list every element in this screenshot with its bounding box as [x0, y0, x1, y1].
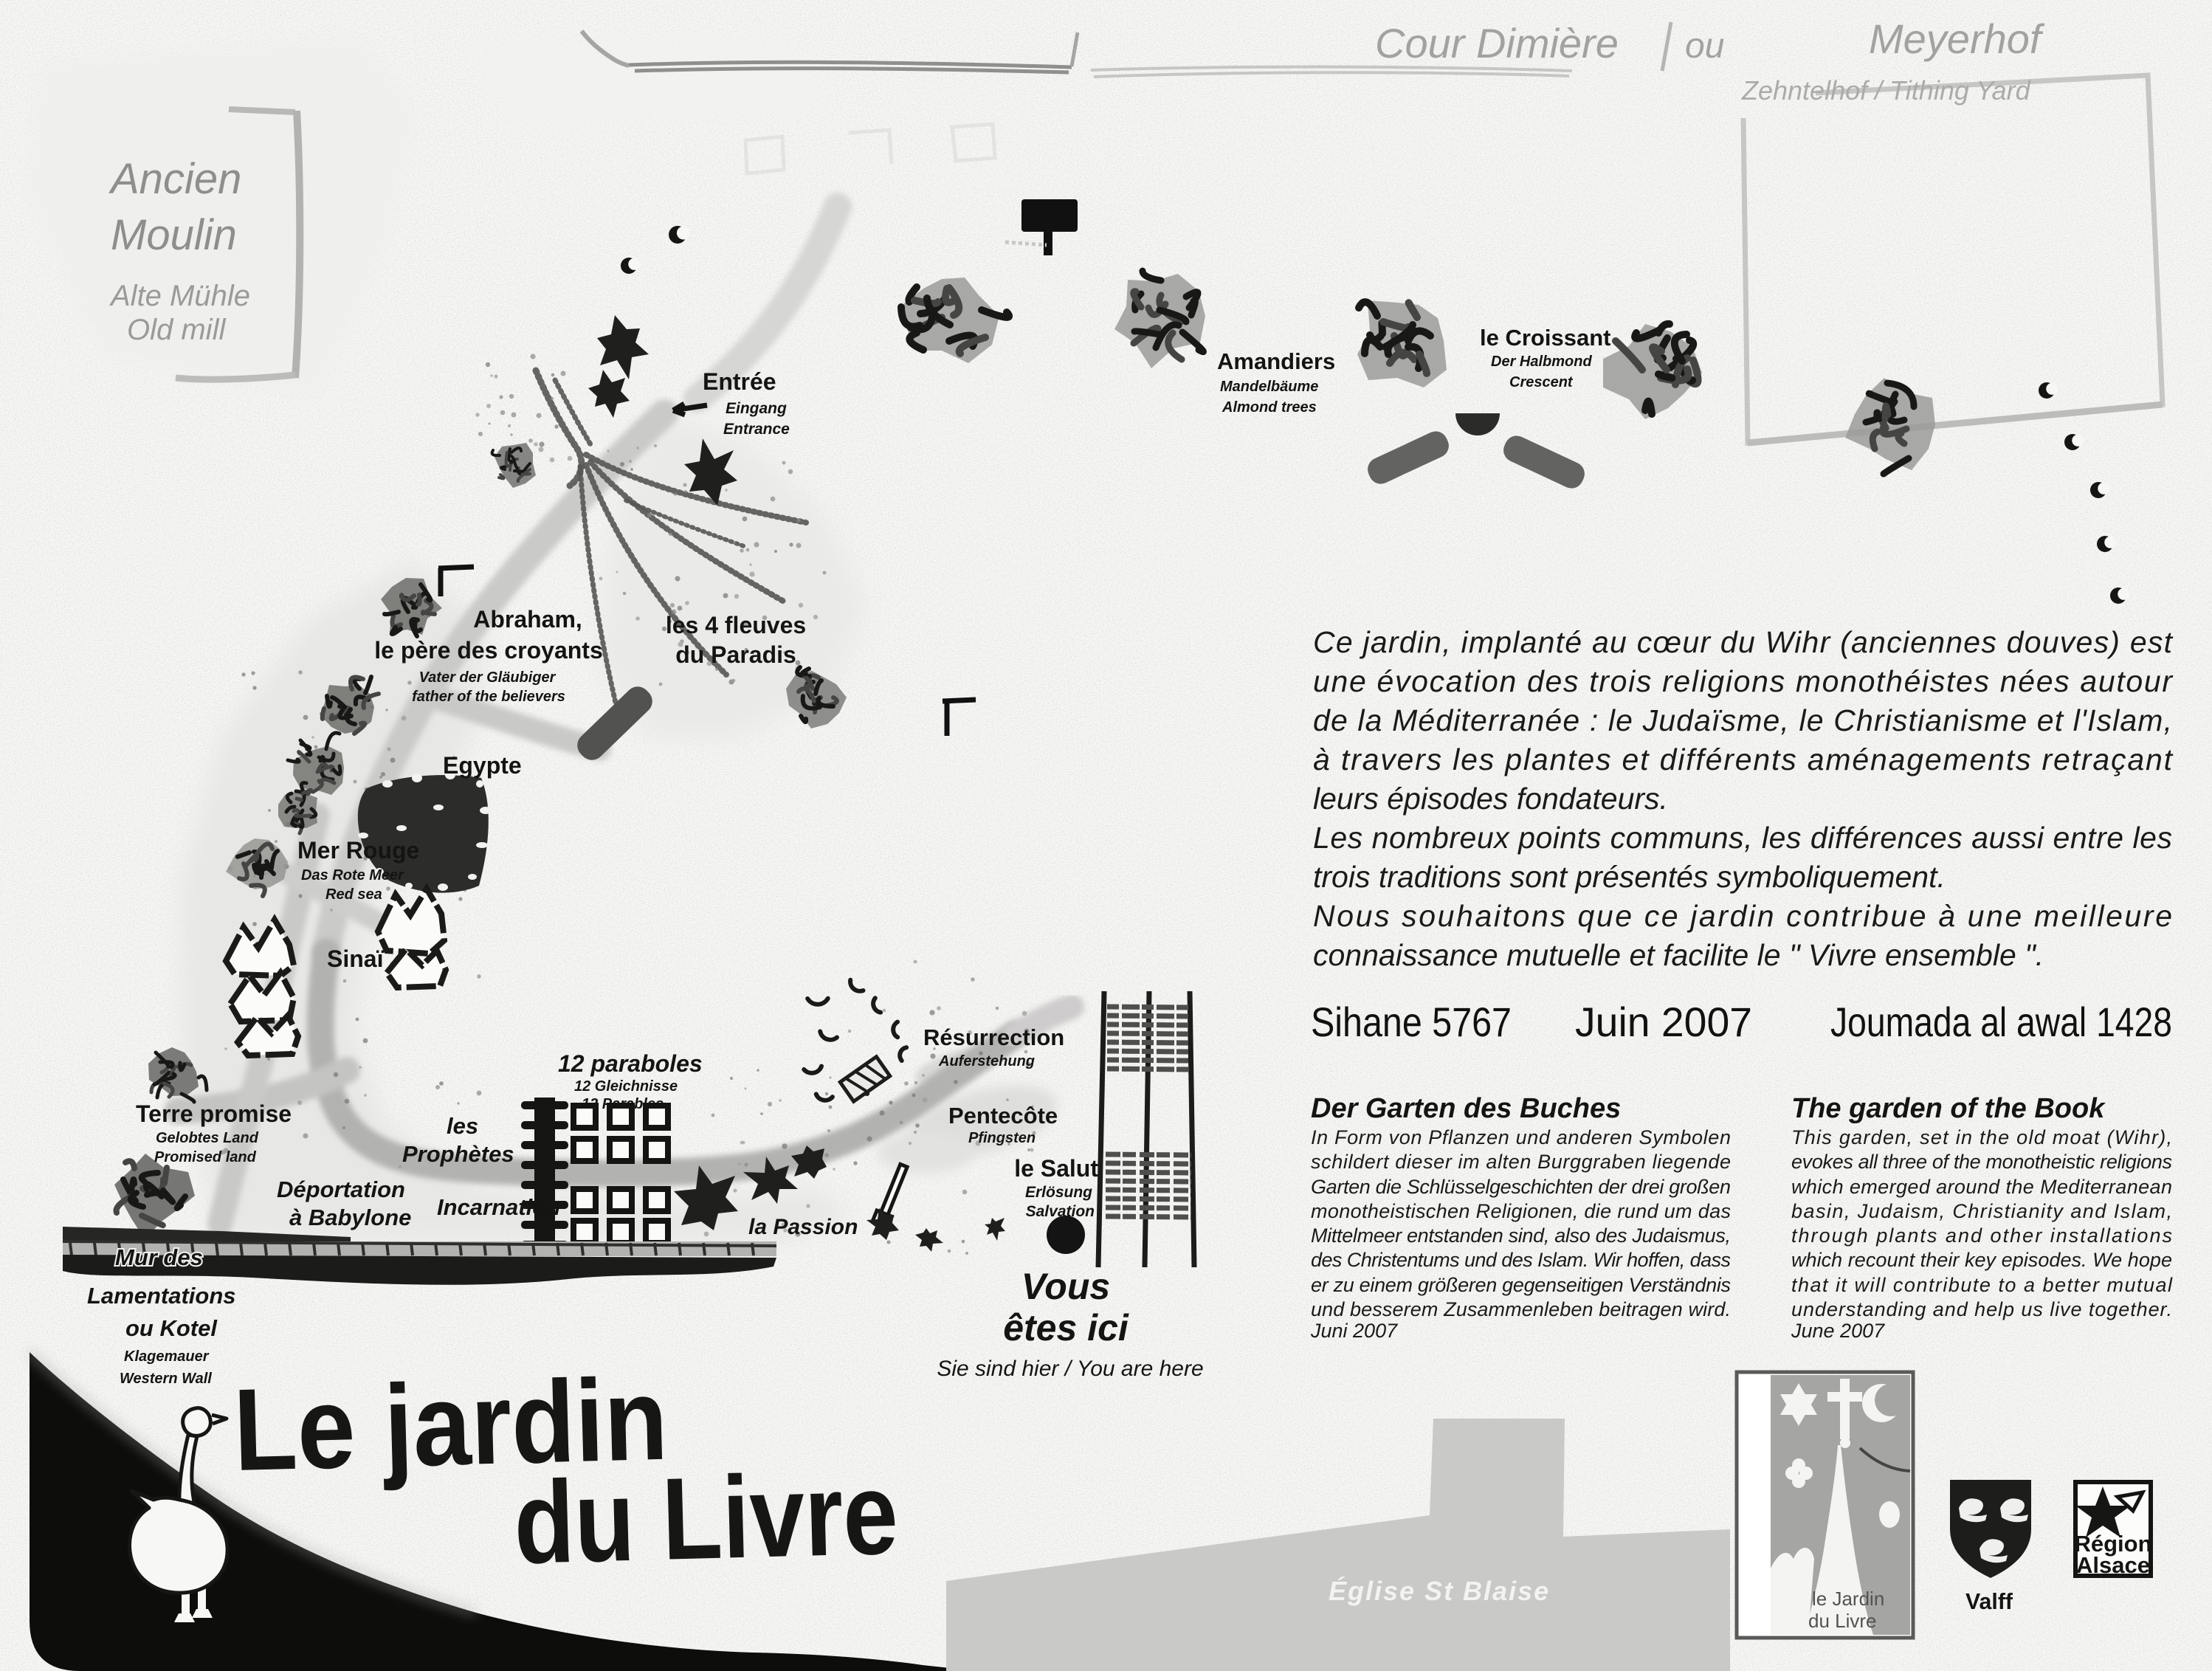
svg-text:la Passion: la Passion	[748, 1215, 858, 1239]
svg-text:le Croissant: le Croissant	[1480, 325, 1610, 351]
svg-text:Sinaï: Sinaï	[327, 945, 385, 972]
svg-text:Mandelbäume: Mandelbäume	[1220, 379, 1318, 395]
svg-text:Zehntelhof / Tithing Yard: Zehntelhof / Tithing Yard	[1741, 75, 2031, 106]
svg-text:Der Halbmond: Der Halbmond	[1491, 354, 1592, 370]
svg-text:understanding and help us live: understanding and help us live together.	[1791, 1298, 2172, 1320]
svg-text:Les nombreux points communs, l: Les nombreux points communs, les différe…	[1313, 821, 2172, 855]
svg-text:des Christentums und des Islam: des Christentums und des Islam. Wir hoff…	[1311, 1249, 1731, 1271]
svg-text:Alsace: Alsace	[2076, 1552, 2150, 1578]
svg-text:The garden of the Book: The garden of the Book	[1791, 1093, 2106, 1124]
svg-text:father of the believers: father of the believers	[412, 689, 565, 705]
svg-text:Vater der Gläubiger: Vater der Gläubiger	[419, 669, 557, 686]
svg-text:le père des croyants: le père des croyants	[374, 637, 602, 664]
svg-text:Eingang: Eingang	[726, 400, 787, 417]
svg-text:Alte Mühle: Alte Mühle	[109, 280, 250, 312]
svg-text:Old mill: Old mill	[127, 314, 226, 346]
svg-text:du Livre: du Livre	[1808, 1610, 1877, 1632]
svg-text:connaissance mutuelle et facil: connaissance mutuelle et facilite le " V…	[1313, 938, 2044, 972]
svg-text:Incarnation: Incarnation	[437, 1194, 560, 1220]
svg-text:Ce jardin, implanté au cœur du: Ce jardin, implanté au cœur du Wihr (anc…	[1313, 625, 2174, 659]
svg-text:er zu einem größeren gegenseit: er zu einem größeren gegenseitigen Verst…	[1311, 1274, 1731, 1296]
svg-text:Erlösung: Erlösung	[1025, 1184, 1092, 1201]
svg-text:Klagemauer: Klagemauer	[124, 1348, 210, 1365]
svg-text:Prophètes: Prophètes	[402, 1141, 514, 1167]
svg-text:Garten die Schlüsselgeschichte: Garten die Schlüsselgeschichten der drei…	[1311, 1176, 1731, 1198]
svg-text:Western Wall: Western Wall	[120, 1371, 212, 1387]
svg-text:Ancien: Ancien	[108, 155, 241, 203]
svg-text:12 paraboles: 12 paraboles	[558, 1050, 703, 1077]
svg-text:In Form von Pflanzen und ander: In Form von Pflanzen und anderen Symbole…	[1311, 1126, 1731, 1148]
svg-text:une évocation des trois religi: une évocation des trois religions monoth…	[1313, 664, 2174, 698]
svg-text:à Babylone: à Babylone	[289, 1205, 411, 1230]
svg-text:Terre promise: Terre promise	[136, 1100, 292, 1127]
svg-text:Salvation: Salvation	[1026, 1203, 1095, 1220]
svg-text:Cour Dimière: Cour Dimière	[1375, 20, 1619, 66]
svg-text:ou Kotel: ou Kotel	[125, 1315, 218, 1341]
svg-text:und besserem Zusammenleben bei: und besserem Zusammenleben beitragen wir…	[1311, 1298, 1731, 1320]
svg-text:Red sea: Red sea	[325, 886, 382, 903]
svg-text:Vous: Vous	[1021, 1266, 1110, 1307]
svg-text:Pentecôte: Pentecôte	[948, 1103, 1058, 1129]
svg-text:Mittelmeer entstanden sind, al: Mittelmeer entstanden sind, also des Jud…	[1311, 1224, 1731, 1247]
svg-text:which emerged around the Medit: which emerged around the Mediterranean	[1791, 1176, 2172, 1198]
svg-text:trois traditions sont présenté: trois traditions sont présentés symboliq…	[1313, 860, 1946, 894]
svg-text:Egypte: Egypte	[443, 752, 522, 779]
svg-text:les 4 fleuves: les 4 fleuves	[666, 612, 806, 638]
svg-text:Déportation: Déportation	[277, 1176, 405, 1202]
svg-text:Résurrection: Résurrection	[923, 1024, 1064, 1050]
svg-text:le Jardin: le Jardin	[1812, 1588, 1884, 1610]
svg-text:This garden, set in the old mo: This garden, set in the old moat (Wihr),	[1791, 1126, 2172, 1148]
svg-text:which recount their key episod: which recount their key episodes. We hop…	[1791, 1249, 2172, 1271]
svg-text:Entrée: Entrée	[703, 368, 776, 395]
svg-text:les: les	[447, 1113, 478, 1139]
svg-text:Juni 2007: Juni 2007	[1310, 1320, 1398, 1342]
svg-text:schildert dieser im alten Burg: schildert dieser im alten Burggraben lie…	[1311, 1151, 1731, 1173]
svg-text:Mer Rouge: Mer Rouge	[297, 837, 419, 864]
svg-text:Entrance: Entrance	[723, 421, 790, 438]
svg-text:monotheistischen Religionen, d: monotheistischen Religionen, die rund um…	[1311, 1200, 1731, 1222]
svg-text:Joumada al awal 1428: Joumada al awal 1428	[1830, 999, 2172, 1045]
svg-text:Meyerhof: Meyerhof	[1869, 15, 2045, 62]
svg-text:Église St Blaise: Église St Blaise	[1329, 1576, 1550, 1606]
svg-text:Auferstehung: Auferstehung	[938, 1053, 1035, 1069]
svg-text:Gelobtes Land: Gelobtes Land	[156, 1130, 259, 1146]
svg-text:basin, Judaism, Christianity a: basin, Judaism, Christianity and Islam,	[1791, 1200, 2172, 1222]
svg-text:du Livre: du Livre	[512, 1448, 899, 1588]
svg-text:leurs épisodes fondateurs.: leurs épisodes fondateurs.	[1313, 782, 1668, 816]
svg-text:Sihane 5767: Sihane 5767	[1311, 999, 1512, 1045]
svg-text:Der Garten des Buches: Der Garten des Buches	[1311, 1093, 1621, 1124]
svg-text:Abraham,: Abraham,	[473, 606, 582, 633]
svg-text:Almond trees: Almond trees	[1222, 399, 1317, 416]
svg-text:du Paradis: du Paradis	[675, 641, 796, 668]
svg-text:le Salut: le Salut	[1014, 1155, 1098, 1182]
svg-text:Nous souhaitons que ce jardin: Nous souhaitons que ce jardin contribue …	[1313, 899, 2172, 933]
svg-text:êtes ici: êtes ici	[1003, 1307, 1129, 1348]
svg-text:Promised land: Promised land	[154, 1149, 257, 1165]
svg-text:Sie sind hier / You are here: Sie sind hier / You are here	[937, 1357, 1203, 1381]
svg-text:Das Rote Meer: Das Rote Meer	[301, 867, 404, 883]
svg-text:12 Parables: 12 Parables	[582, 1096, 664, 1112]
svg-text:12 Gleichnisse: 12 Gleichnisse	[574, 1078, 678, 1095]
svg-text:Amandiers: Amandiers	[1217, 348, 1335, 374]
svg-text:Moulin: Moulin	[111, 211, 237, 259]
svg-text:de la Méditerranée : le Judaïs: de la Méditerranée : le Judaïsme, le Chr…	[1313, 703, 2172, 737]
svg-text:June 2007: June 2007	[1791, 1320, 1885, 1342]
svg-text:evokes all three of the monoth: evokes all three of the monotheistic rel…	[1791, 1151, 2172, 1173]
svg-text:Juin 2007: Juin 2007	[1575, 999, 1752, 1045]
svg-text:Crescent: Crescent	[1509, 374, 1574, 390]
svg-text:Pfingsten: Pfingsten	[968, 1130, 1036, 1146]
svg-text:that it will contribute to a b: that it will contribute to a better mutu…	[1791, 1274, 2173, 1296]
svg-text:ou: ou	[1685, 27, 1724, 66]
svg-text:Valff: Valff	[1965, 1588, 2013, 1614]
svg-text:through plants and other insta: through plants and other installations	[1791, 1224, 2172, 1247]
svg-text:Lamentations: Lamentations	[87, 1283, 236, 1309]
svg-text:Mur des: Mur des	[115, 1244, 203, 1270]
